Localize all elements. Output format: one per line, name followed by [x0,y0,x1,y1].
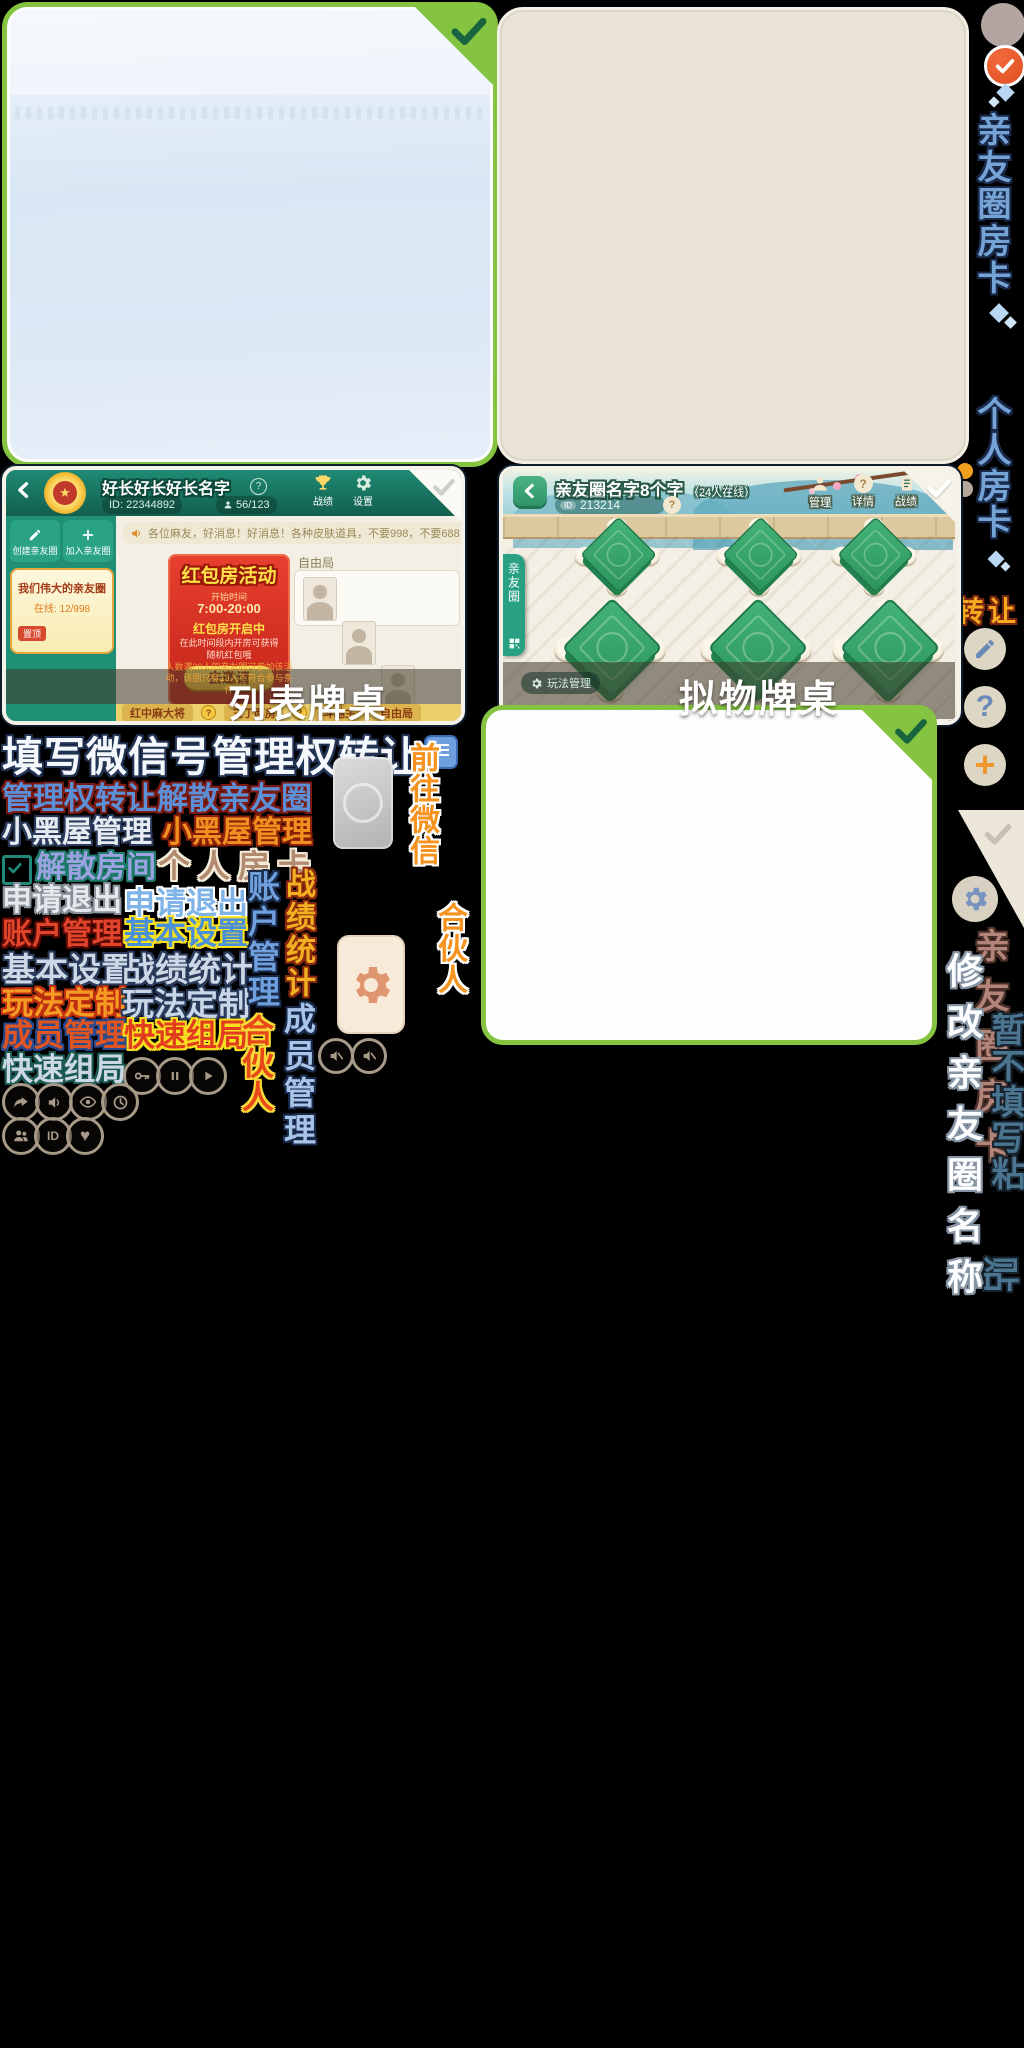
online-count: （24人在线） [688,487,755,499]
mahjong-table[interactable] [830,518,918,598]
check-icon [892,712,930,750]
sprite-apply-exit-b: 申请退出 [124,888,248,919]
back-icon[interactable] [14,480,34,500]
club-id-badge: ID: 22344892 [102,496,182,514]
tab-help-icon[interactable]: ? [201,705,216,720]
heart-icon[interactable]: ♥ [66,1117,104,1155]
club-card-title: 我们伟大的亲友圈 [12,580,112,596]
sprite-basic-settings-b: 基本设置 [2,953,134,986]
screenshot-caption: 拟物牌桌 [679,668,839,721]
dissolve-brackets-icon [2,855,32,885]
settings-gear-button[interactable] [952,876,998,922]
transfer-button-label[interactable]: 转让 [956,598,1020,626]
sprite-quick-b: 快速组局 [2,1054,126,1085]
pencil-icon [973,637,997,661]
question-icon: ? [976,690,994,724]
seat-row-card [294,570,460,626]
screenshot-content: ★ 好长好长好长名字 ? ID: 22344892 56/123 战绩 设置 [6,470,461,721]
sprite-partner-a: 合伙人 [240,1014,272,1113]
screenshot-content: 亲友圈名字8个字 （24人在线） ID 213214 ? 管理 ? 详情 战绩 [503,470,957,721]
sprite-member-mgmt: 成员管理 [2,1020,126,1051]
check-icon [982,818,1014,850]
qr-icon [508,637,521,650]
sprite-apply-exit-a: 申请退出 [2,886,122,916]
gear-icon [347,961,395,1009]
gear-icon [353,473,373,493]
detail-action[interactable]: ? 详情 [842,474,884,509]
tab-hongzhong[interactable]: 红中麻大将 [122,704,193,722]
panel-top-band [7,7,493,95]
promo-title: 红包房活动 [168,561,290,588]
room-id-badge: ID 213214 [555,496,665,514]
lobby-header: ★ 好长好长好长名字 ? ID: 22344892 56/123 战绩 设置 [6,470,461,516]
add-button[interactable]: + [964,744,1006,786]
club-card-online: 在线: 12/998 [12,600,112,615]
join-club-button[interactable]: 加入亲友圈 [63,520,113,564]
plus-icon: + [974,744,995,786]
sprite-custom-b: 玩法定制 [122,988,250,1020]
blank-card-white-selected[interactable] [481,705,937,1045]
gear-tile-button[interactable] [337,935,405,1034]
sprite-account-mgmt: 账户管理 [2,920,122,950]
back-icon [521,482,539,500]
sprite-quick-a: 快速组局 [124,1020,248,1051]
title-help-icon[interactable]: ? [250,478,267,495]
sprite-stats-v: 战绩统计 [282,868,312,1000]
sprite-blackroom-b: 小黑屋管理 [162,818,312,848]
sprite-custom-a: 玩法定制 [2,988,126,1019]
sprite-account-mgmt-v: 账户管理 [246,870,278,1010]
screenshot-caption: 列表牌桌 [228,673,388,721]
mute-speaker-icon[interactable] [351,1038,387,1074]
cloud-tile-button[interactable] [333,757,393,849]
avatar-circle[interactable] [981,3,1024,47]
rail-label-personal-card: 个人房卡 [974,396,1008,540]
mute-speaker-icon[interactable] [318,1038,354,1074]
seat-avatar[interactable] [342,621,376,665]
stats-button[interactable]: 战绩 [306,473,340,508]
check-icon [448,10,490,52]
blank-card-beige[interactable] [497,7,969,464]
help-button[interactable]: ? [663,496,681,514]
announcement-marquee: 各位麻友，好消息！好消息！各种皮肤道具，不要998，不要688，只要98元，只要… [122,522,461,544]
rail-label-circle-card: 亲友圈房卡 [974,112,1008,297]
settings-button[interactable]: 设置 [346,473,380,508]
promo-time: 7:00-20:00 [168,601,290,616]
blank-card-blue-selected[interactable] [2,2,498,467]
sprite-stats: 战绩统计 [122,953,254,986]
rail-label-paste: 贴 [982,1256,1018,1292]
help-button[interactable]: ? [964,686,1006,728]
member-count-badge: 56/123 [216,496,277,514]
selected-corner [857,705,937,785]
gear-icon [960,884,990,914]
trophy-icon [313,473,333,493]
pencil-icon [28,528,42,542]
pin-badge[interactable]: 置顶 [18,626,46,641]
clock-icon[interactable] [101,1083,139,1121]
speaker-icon [130,527,143,540]
club-side-tab[interactable]: 亲友圈 [503,554,525,656]
club-emblem: ★ [44,472,86,514]
seat-avatar[interactable] [303,577,337,621]
sprite-partner-b: 合伙人 [434,902,464,995]
sprite-goto-wechat: 前往微信 [406,742,436,866]
mahjong-table[interactable] [715,518,803,598]
free-room-label: 自由局 [298,554,334,571]
plus-icon [81,528,95,542]
promo-desc: 在此时间段内开房可获得随机红包哦 [178,638,280,661]
sprite-transfer-dissolve: 管理权转让解散亲友圈 [2,783,312,814]
rail-label-skip-fill: 暂不填写粘 [988,1012,1022,1192]
mahjong-table[interactable] [573,518,661,598]
person-icon [223,500,233,510]
create-club-button[interactable]: 创建亲友圈 [10,520,60,564]
sprite-dissolve-room: 解散房间 [36,853,156,883]
manage-action[interactable]: 管理 [799,474,841,510]
promo-status: 红包房开启中 [168,620,290,637]
back-button[interactable] [513,476,547,506]
sprite-blackroom-a: 小黑屋管理 [2,818,152,848]
play-icon[interactable] [189,1057,227,1095]
sprite-sheet-stage: 亲友圈房卡 个人房卡 转让 ? + 亲友圈房卡 修改亲友圈名称 暂不填写粘 贴 … [0,0,1024,2048]
sprite-member-mgmt-v: 成员管理 [282,1002,314,1150]
person-icon [810,474,830,494]
question-icon: ? [854,474,873,493]
edit-button[interactable] [964,628,1006,670]
club-card[interactable]: 我们伟大的亲友圈 在线: 12/998 置顶 [10,568,114,654]
list-table-screenshot[interactable]: ★ 好长好长好长名字 ? ID: 22344892 56/123 战绩 设置 [0,464,467,727]
sound-icon[interactable] [35,1083,73,1121]
id-icon: ID [560,501,576,510]
rail-label-modify-name: 修改亲友圈名称 [944,952,980,1309]
panel-dot-texture [15,107,485,119]
gear-icon [530,677,543,690]
sprite-basic-settings-a: 基本设置 [124,918,248,949]
check-circle-icon[interactable] [984,45,1024,87]
gameplay-manage-button[interactable]: 玩法管理 [521,672,600,694]
physical-table-screenshot[interactable]: 亲友圈名字8个字 （24人在线） ID 213214 ? 管理 ? 详情 战绩 [497,464,963,727]
